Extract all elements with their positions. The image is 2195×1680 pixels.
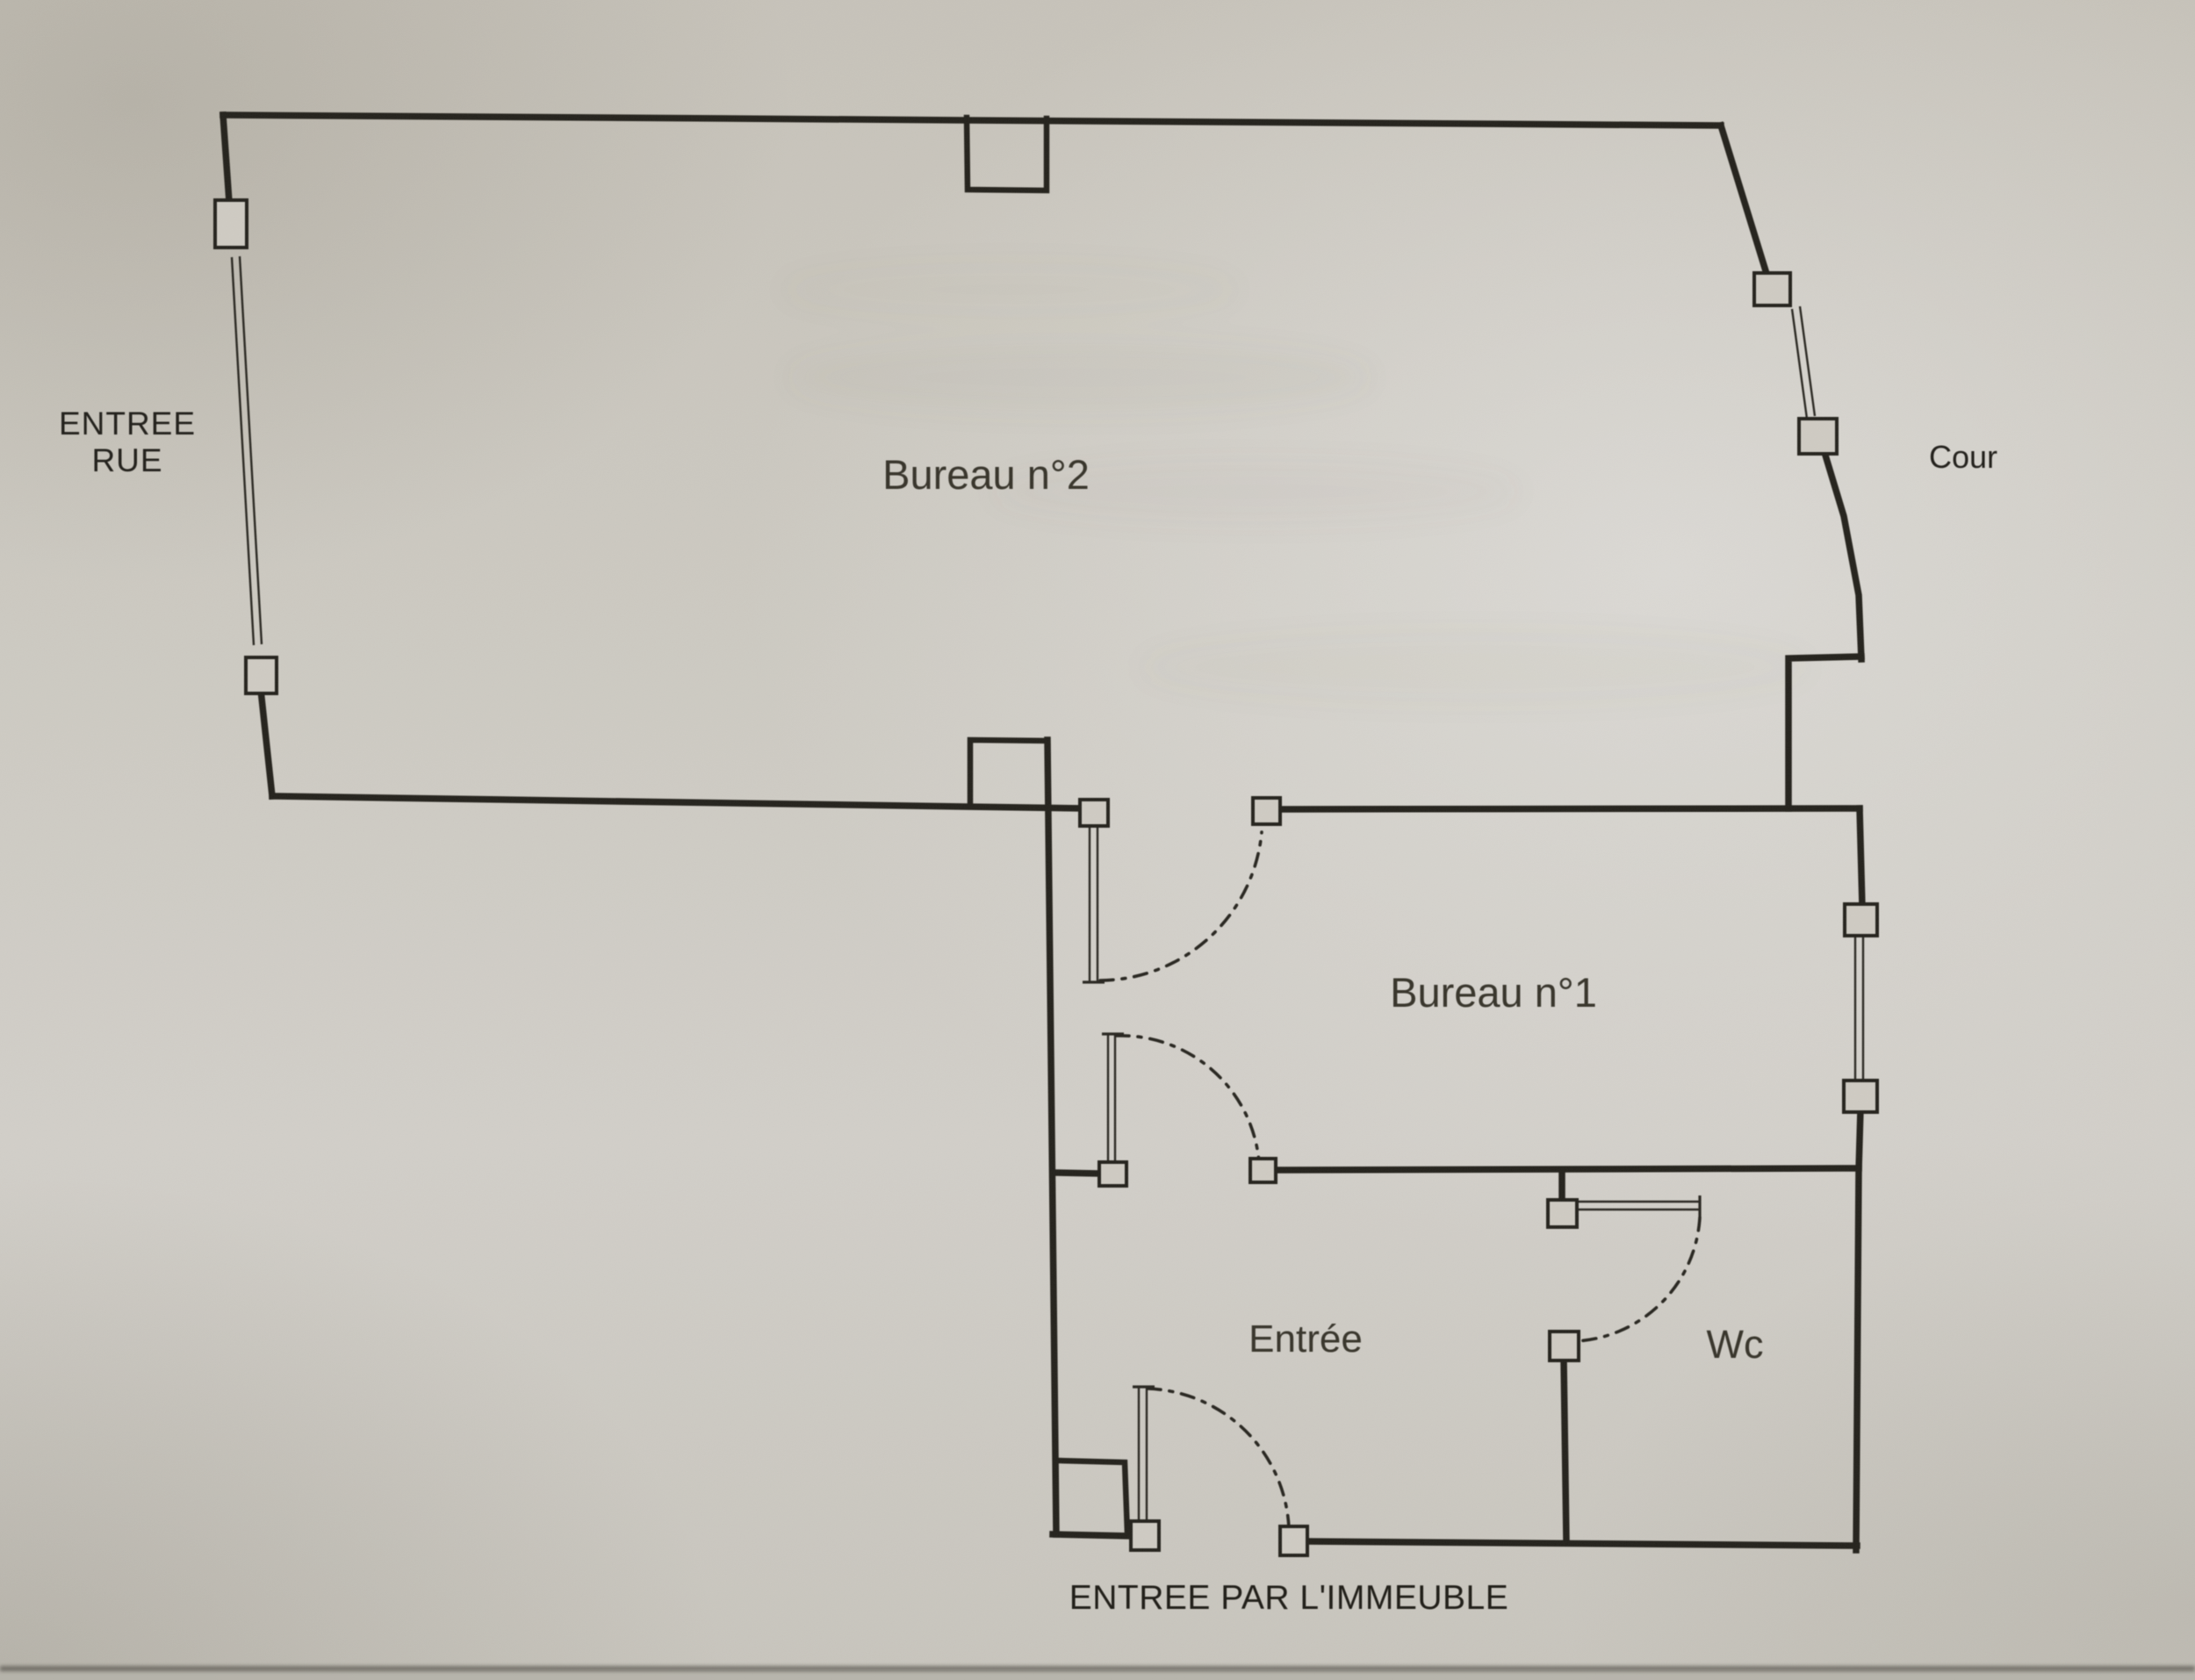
paper-edge-shadow xyxy=(0,1666,2195,1671)
paper-bottom-strip xyxy=(0,1670,2195,1680)
floor-plan-photo: Bureau n°2 Bureau n°1 Entrée Wc ENTREE R… xyxy=(0,0,2195,1680)
paper-grain-overlay xyxy=(0,0,2195,1680)
